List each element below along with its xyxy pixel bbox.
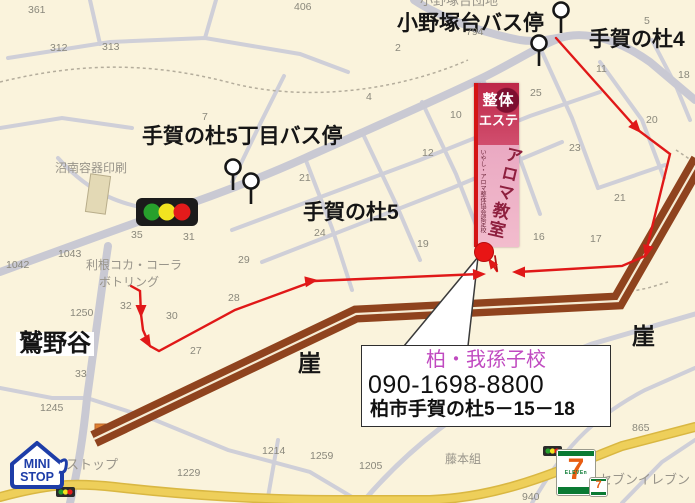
map-label: 手賀の杜5丁目バス停 <box>142 126 343 147</box>
school-phone: 090-1698-8800 <box>368 372 610 398</box>
seven-numeral-small: 7 <box>590 479 607 492</box>
map-number: 4 <box>366 92 372 103</box>
map-number: 5 <box>644 16 650 27</box>
route-map: 整体 エステ いやし・アロマ整体協会認定校 アロマ教室 柏・我孫子校 090-1… <box>0 0 695 503</box>
map-number: 27 <box>190 346 202 357</box>
map-number: 2 <box>395 43 401 54</box>
map-label: 手賀の杜4 <box>589 29 685 50</box>
map-number: 18 <box>678 70 690 81</box>
map-number: 10 <box>450 110 462 121</box>
callout-pointer <box>404 257 478 346</box>
map-number: 1259 <box>310 451 333 462</box>
map-number: 7 <box>202 112 208 123</box>
map-number: 1205 <box>359 461 382 472</box>
school-address: 柏市手賀の杜5－15－18 <box>370 398 610 422</box>
map-number: 28 <box>228 293 240 304</box>
ministop-logo: MINI STOP <box>4 436 70 490</box>
map-label: ボトリング <box>99 276 159 288</box>
banner-line1: 整体 <box>478 83 519 110</box>
map-label: セブンイレブン <box>599 473 690 486</box>
map-label: ストップ <box>66 458 118 471</box>
seven-eleven-map-icon: 7 <box>589 477 608 497</box>
map-label: 利根コカ・コーラ <box>86 259 182 271</box>
map-number: 1229 <box>177 468 200 479</box>
map-number: 20 <box>646 115 658 126</box>
eleven-text: ELEVEn <box>557 470 595 476</box>
map-number: 794 <box>466 27 484 38</box>
destination-dot <box>474 242 494 262</box>
map-number: 31 <box>183 232 195 243</box>
banner-line2: エステ <box>478 110 519 129</box>
map-number: 1042 <box>6 260 29 271</box>
map-number: 21 <box>614 193 626 204</box>
school-callout-box: 柏・我孫子校 090-1698-8800 柏市手賀の杜5－15－18 <box>361 345 611 427</box>
map-label: 崖 <box>298 352 321 375</box>
map-number: 940 <box>522 492 540 503</box>
map-number: 32 <box>120 301 132 312</box>
map-number: 11 <box>596 64 607 75</box>
map-number: 16 <box>533 232 545 243</box>
map-number: 30 <box>166 311 178 322</box>
map-number: 361 <box>28 5 46 16</box>
map-number: 35 <box>131 230 143 241</box>
map-number: 24 <box>314 228 326 239</box>
seven-green-strip <box>591 492 606 495</box>
aroma-school-banner: 整体 エステ いやし・アロマ整体協会認定校 アロマ教室 <box>474 83 519 247</box>
map-number: 12 <box>422 148 434 159</box>
map-label: 藤本組 <box>445 453 481 465</box>
map-number: 865 <box>632 423 650 434</box>
basemap-svg <box>0 0 695 503</box>
map-number: 21 <box>299 173 311 184</box>
map-number: 313 <box>102 42 120 53</box>
map-number: 19 <box>417 239 429 250</box>
map-number: 406 <box>294 2 312 13</box>
traffic-light-icon <box>136 198 198 226</box>
map-label: 鷲野谷 <box>16 332 94 356</box>
map-label: 手賀の杜5 <box>303 202 399 223</box>
map-label: 沼南容器印刷 <box>55 162 127 174</box>
map-number: 29 <box>238 255 250 266</box>
map-label: 崖 <box>632 325 655 348</box>
map-label: 小野塚台団地 <box>420 0 498 7</box>
map-number: 1214 <box>262 446 285 457</box>
map-number: 1043 <box>58 249 81 260</box>
banner-top-section: 整体 エステ <box>478 83 519 145</box>
map-number: 23 <box>569 143 581 154</box>
map-number: 25 <box>530 88 542 99</box>
map-number: 17 <box>590 234 602 245</box>
map-number: 1245 <box>40 403 63 414</box>
banner-main-section: いやし・アロマ整体協会認定校 アロマ教室 <box>478 145 519 247</box>
ministop-text-stop: STOP <box>11 471 63 484</box>
map-number: 312 <box>50 43 68 54</box>
map-number: 1250 <box>70 308 93 319</box>
map-number: 33 <box>75 369 87 380</box>
school-name: 柏・我孫子校 <box>362 349 610 372</box>
